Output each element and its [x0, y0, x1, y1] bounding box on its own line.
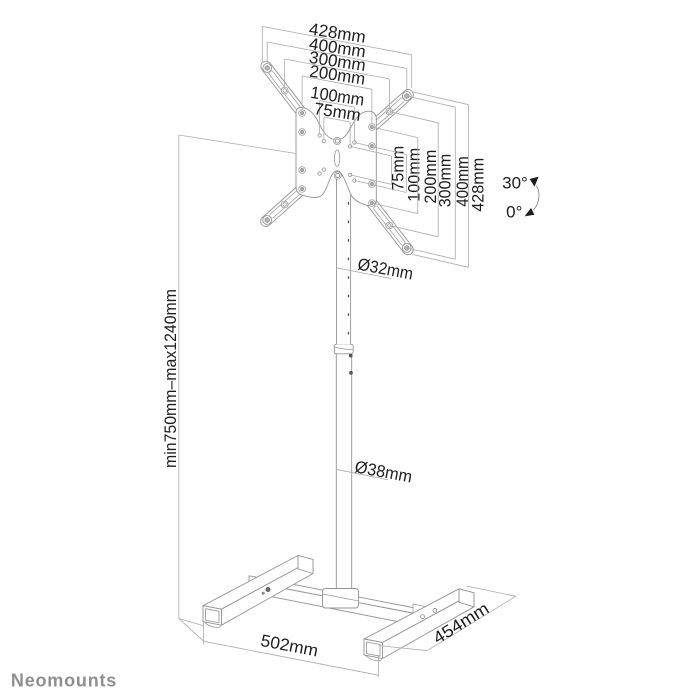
svg-text:Neomounts: Neomounts	[11, 671, 117, 691]
svg-text:0°: 0°	[506, 202, 522, 221]
svg-text:30°: 30°	[502, 173, 528, 192]
svg-text:100mm: 100mm	[406, 148, 424, 202]
svg-text:428mm: 428mm	[469, 158, 487, 212]
svg-text:300mm: 300mm	[436, 154, 454, 208]
svg-text:min750mm–max1240mm: min750mm–max1240mm	[161, 289, 180, 468]
